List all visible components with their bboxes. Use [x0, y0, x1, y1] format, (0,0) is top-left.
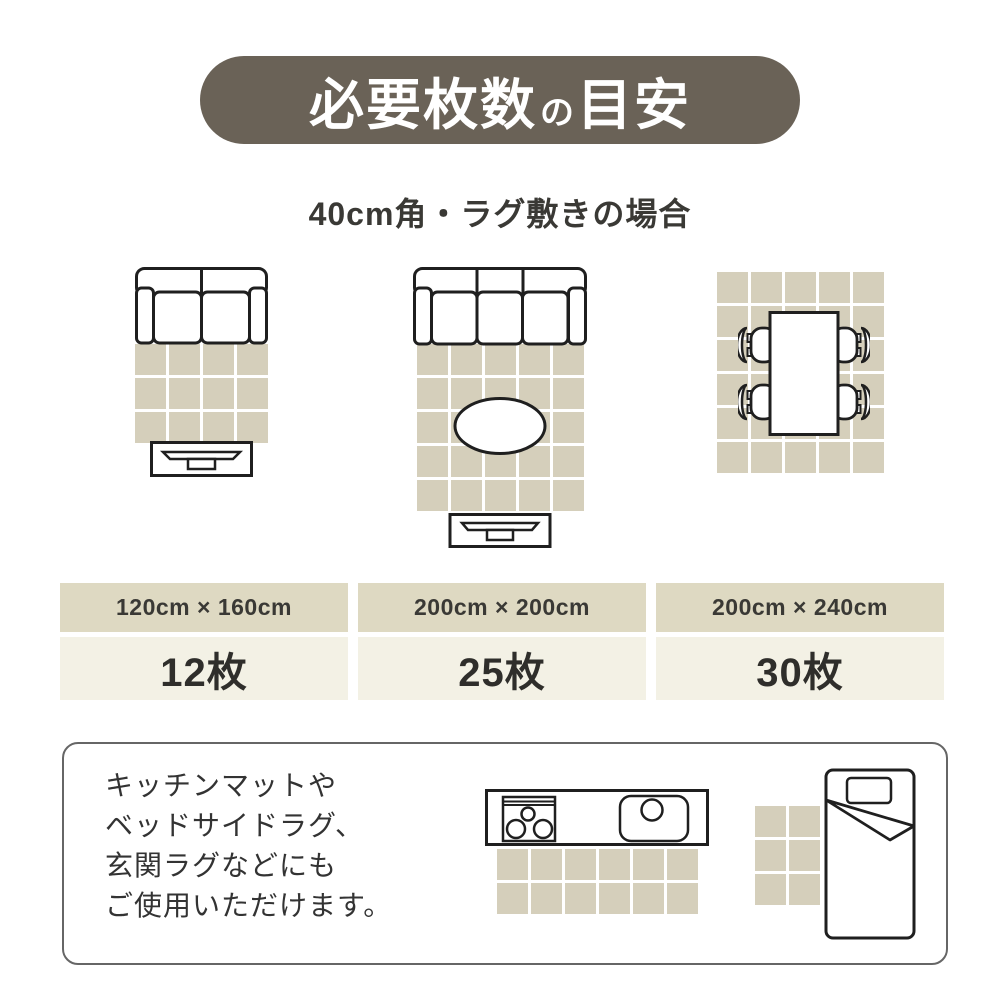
note-line: キッチンマットや	[105, 766, 392, 806]
rug-grid-2x3	[755, 806, 820, 905]
size-header-1: 120cm × 160cm	[60, 583, 348, 632]
burner-icon	[507, 820, 525, 838]
note-line: ご使用いただけます。	[105, 886, 392, 926]
size-header-2: 200cm × 200cm	[358, 583, 646, 632]
rug-grid-6x2	[497, 849, 698, 914]
rug-grid-4x3	[135, 344, 268, 443]
size-table: 120cm × 160cm 200cm × 200cm 200cm × 240c…	[60, 583, 944, 700]
kitchen-counter-icon	[485, 788, 709, 848]
title-particle: の	[540, 94, 574, 132]
title-part1: 必要枚数	[309, 74, 537, 136]
dining-set-icon	[738, 310, 870, 438]
subtitle: 40cm角・ラグ敷きの場合	[0, 189, 1000, 235]
infographic-canvas: 必要枚数の目安 40cm角・ラグ敷きの場合	[0, 0, 1000, 1000]
title-banner: 必要枚数の目安	[200, 56, 800, 144]
note-line: ベッドサイドラグ、	[105, 806, 392, 846]
count-value-2: 25枚	[358, 637, 646, 700]
page-title: 必要枚数の目安	[309, 60, 691, 140]
usage-note-text: キッチンマットや ベッドサイドラグ、 玄関ラグなどにも ご使用いただけます。	[105, 766, 392, 926]
sofa-2seat-icon	[135, 267, 268, 345]
tv-board-icon	[448, 513, 552, 549]
note-line: 玄関ラグなどにも	[105, 846, 392, 886]
count-value-1: 12枚	[60, 637, 348, 700]
title-part2: 目安	[577, 74, 691, 136]
pillow-icon	[847, 778, 891, 803]
sofa-3seat-icon	[413, 267, 587, 346]
coffee-table-icon	[452, 396, 548, 456]
size-header-3: 200cm × 240cm	[656, 583, 944, 632]
dining-table-icon	[770, 313, 838, 435]
count-value-3: 30枚	[656, 637, 944, 700]
tv-board-icon	[150, 441, 253, 478]
drain-icon	[642, 800, 663, 821]
burner-icon	[534, 820, 552, 838]
burner-icon	[522, 808, 535, 821]
bed-icon	[824, 768, 916, 942]
